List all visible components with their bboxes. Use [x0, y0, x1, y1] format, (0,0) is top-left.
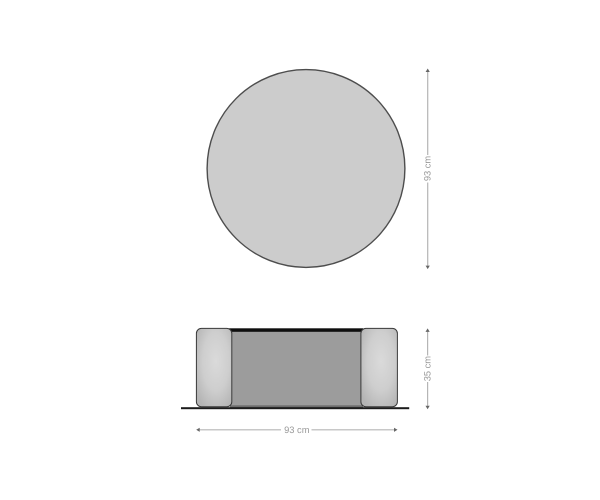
svg-text:93 cm: 93 cm — [284, 425, 310, 435]
svg-text:35 cm: 35 cm — [423, 356, 433, 382]
svg-text:93 cm: 93 cm — [423, 156, 433, 182]
